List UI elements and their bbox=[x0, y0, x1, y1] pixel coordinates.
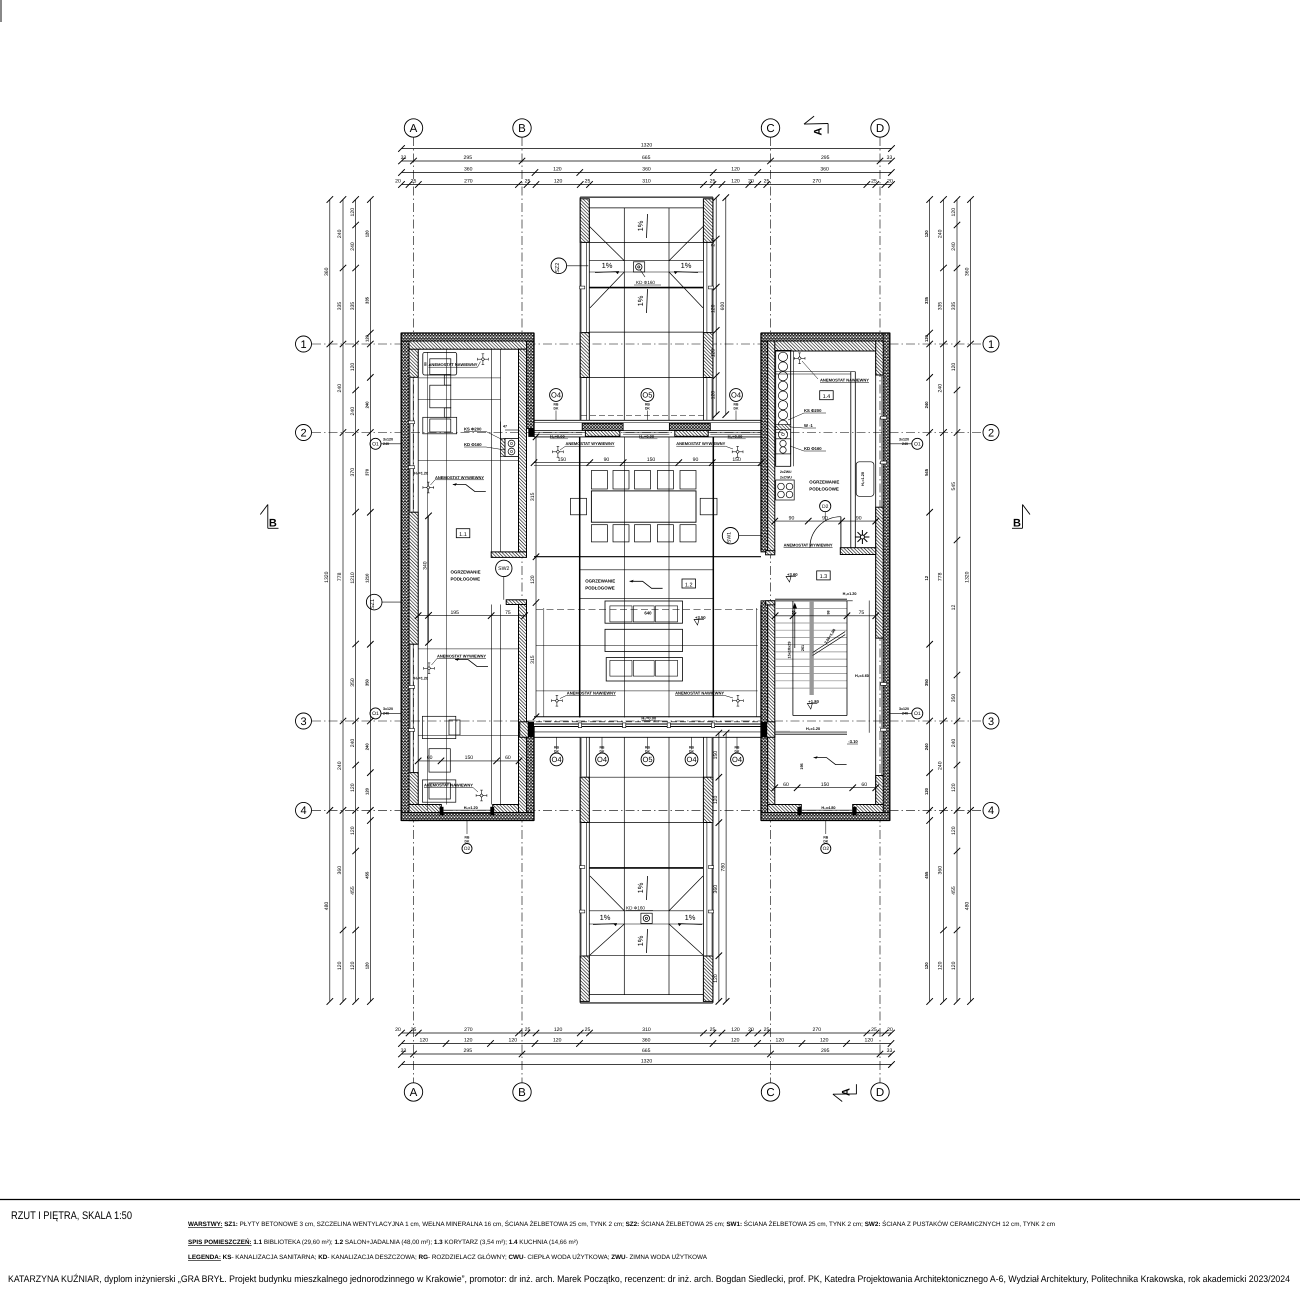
svg-text:A: A bbox=[813, 127, 825, 135]
svg-text:350: 350 bbox=[951, 694, 957, 703]
svg-text:20: 20 bbox=[395, 179, 401, 185]
svg-text:KD Φ160: KD Φ160 bbox=[626, 906, 645, 911]
svg-text:1.3: 1.3 bbox=[820, 574, 828, 580]
svg-text:1%: 1% bbox=[636, 295, 645, 306]
svg-text:120: 120 bbox=[951, 363, 957, 372]
svg-text:H₅=1.20: H₅=1.20 bbox=[414, 676, 428, 680]
svg-text:25: 25 bbox=[525, 1027, 531, 1033]
svg-text:350: 350 bbox=[350, 678, 356, 687]
svg-text:778: 778 bbox=[337, 572, 343, 581]
svg-text:665: 665 bbox=[642, 155, 651, 161]
svg-text:33: 33 bbox=[887, 155, 893, 161]
svg-text:120: 120 bbox=[350, 363, 356, 372]
svg-text:3x120: 3x120 bbox=[383, 438, 393, 442]
svg-text:150: 150 bbox=[558, 457, 567, 463]
svg-text:-3.10: -3.10 bbox=[848, 739, 858, 744]
svg-text:120: 120 bbox=[951, 826, 957, 835]
svg-text:240: 240 bbox=[350, 407, 356, 416]
svg-text:2: 2 bbox=[988, 427, 994, 439]
svg-text:240: 240 bbox=[951, 739, 957, 748]
svg-text:1320: 1320 bbox=[641, 1059, 652, 1065]
svg-text:1.2: 1.2 bbox=[685, 582, 693, 588]
svg-text:ANEMOSTAT NAWIEWNY: ANEMOSTAT NAWIEWNY bbox=[675, 690, 724, 695]
svg-text:2: 2 bbox=[300, 427, 306, 439]
svg-text:240: 240 bbox=[337, 761, 343, 770]
svg-text:O4: O4 bbox=[551, 755, 561, 764]
svg-text:DK: DK bbox=[465, 839, 470, 843]
svg-text:25: 25 bbox=[710, 179, 716, 185]
svg-text:1: 1 bbox=[300, 339, 306, 351]
svg-text:360: 360 bbox=[965, 267, 971, 276]
svg-text:25: 25 bbox=[525, 179, 531, 185]
svg-text:O2: O2 bbox=[464, 846, 471, 852]
svg-text:WARSTWY: SZ1: PŁYTY BETONOWE 3: WARSTWY: SZ1: PŁYTY BETONOWE 3 cm, SZCZE… bbox=[188, 1220, 1055, 1228]
svg-text:240: 240 bbox=[938, 761, 944, 770]
svg-text:120: 120 bbox=[865, 1038, 874, 1044]
svg-text:1%: 1% bbox=[636, 220, 645, 231]
svg-text:370: 370 bbox=[350, 468, 356, 477]
svg-text:310: 310 bbox=[642, 179, 651, 185]
svg-text:120: 120 bbox=[951, 961, 957, 970]
svg-text:120: 120 bbox=[924, 962, 929, 970]
svg-text:315: 315 bbox=[530, 655, 536, 664]
svg-text:O4: O4 bbox=[686, 755, 696, 764]
svg-text:25: 25 bbox=[764, 1027, 770, 1033]
svg-text:O4: O4 bbox=[731, 391, 741, 400]
svg-text:1210: 1210 bbox=[350, 572, 356, 583]
svg-text:455: 455 bbox=[924, 871, 929, 879]
svg-text:240: 240 bbox=[902, 442, 908, 446]
svg-text:90: 90 bbox=[604, 457, 610, 463]
svg-text:25: 25 bbox=[585, 179, 591, 185]
svg-text:A: A bbox=[410, 1087, 418, 1099]
svg-text:47: 47 bbox=[503, 424, 507, 428]
svg-text:120: 120 bbox=[365, 334, 370, 342]
svg-text:270: 270 bbox=[813, 179, 822, 185]
svg-text:B: B bbox=[518, 123, 526, 135]
svg-text:335: 335 bbox=[337, 302, 343, 311]
svg-text:240: 240 bbox=[350, 739, 356, 748]
svg-text:240: 240 bbox=[710, 238, 716, 247]
svg-text:H₅=1.20: H₅=1.20 bbox=[806, 727, 820, 731]
svg-text:O5: O5 bbox=[642, 755, 652, 764]
svg-text:H₁=4.60: H₁=4.60 bbox=[855, 674, 869, 678]
svg-text:455: 455 bbox=[350, 886, 356, 895]
svg-text:360: 360 bbox=[642, 1038, 651, 1044]
svg-text:ANEMOSTAT NAWIEWNY: ANEMOSTAT NAWIEWNY bbox=[820, 378, 869, 383]
svg-text:1%: 1% bbox=[685, 913, 696, 922]
svg-text:DK: DK bbox=[554, 407, 559, 411]
svg-text:1%: 1% bbox=[600, 913, 611, 922]
svg-text:240: 240 bbox=[902, 712, 908, 716]
svg-text:120: 120 bbox=[951, 208, 957, 217]
svg-text:1320: 1320 bbox=[324, 571, 330, 582]
svg-text:O1: O1 bbox=[914, 442, 921, 448]
svg-text:120: 120 bbox=[464, 1038, 473, 1044]
svg-text:90: 90 bbox=[822, 515, 828, 521]
svg-text:335: 335 bbox=[924, 296, 929, 304]
svg-text:ANEMOSTAT NAWIEWNY: ANEMOSTAT NAWIEWNY bbox=[567, 690, 616, 695]
svg-text:1%: 1% bbox=[602, 261, 613, 270]
svg-text:120: 120 bbox=[350, 783, 356, 792]
svg-text:20: 20 bbox=[395, 1027, 401, 1033]
svg-text:360: 360 bbox=[713, 885, 719, 894]
svg-text:120: 120 bbox=[350, 961, 356, 970]
svg-text:120: 120 bbox=[951, 783, 957, 792]
svg-text:120: 120 bbox=[924, 230, 929, 238]
svg-text:360: 360 bbox=[938, 866, 944, 875]
svg-text:240: 240 bbox=[365, 401, 370, 409]
svg-text:O4: O4 bbox=[551, 391, 561, 400]
svg-text:RZUT I PIĘTRA, SKALA 1:50: RZUT I PIĘTRA, SKALA 1:50 bbox=[11, 1210, 132, 1222]
svg-text:1: 1 bbox=[988, 339, 994, 351]
svg-text:B: B bbox=[1013, 518, 1021, 530]
svg-text:B: B bbox=[269, 518, 277, 530]
svg-text:ANEMOSTAT NAWIEWNY: ANEMOSTAT NAWIEWNY bbox=[424, 783, 473, 788]
svg-text:LEGENDA: KS- KANALIZACJA SANIT: LEGENDA: KS- KANALIZACJA SANITARNA; KD- … bbox=[188, 1253, 708, 1261]
svg-text:25: 25 bbox=[411, 1027, 417, 1033]
svg-text:DK: DK bbox=[823, 839, 828, 843]
svg-text:12: 12 bbox=[924, 575, 929, 580]
svg-text:600: 600 bbox=[720, 302, 726, 311]
svg-text:295: 295 bbox=[821, 1048, 830, 1054]
svg-text:DK: DK bbox=[734, 407, 739, 411]
svg-text:335: 335 bbox=[350, 302, 356, 311]
svg-text:O1: O1 bbox=[372, 711, 379, 717]
svg-text:240: 240 bbox=[938, 229, 944, 238]
svg-text:90: 90 bbox=[693, 457, 699, 463]
svg-text:150: 150 bbox=[465, 755, 474, 761]
svg-text:2xCWU: 2xCWU bbox=[780, 476, 792, 480]
svg-text:120: 120 bbox=[710, 391, 716, 400]
svg-text:261: 261 bbox=[801, 645, 805, 651]
svg-text:360: 360 bbox=[820, 167, 829, 173]
svg-text:150: 150 bbox=[821, 782, 830, 788]
svg-text:OGRZEWANIE: OGRZEWANIE bbox=[809, 480, 839, 485]
svg-text:240: 240 bbox=[365, 743, 370, 751]
svg-text:ANEMOSTAT WYWIEWNY: ANEMOSTAT WYWIEWNY bbox=[676, 441, 725, 446]
svg-text:1210: 1210 bbox=[365, 573, 370, 583]
svg-text:3x120: 3x120 bbox=[383, 707, 393, 711]
svg-text:270: 270 bbox=[464, 1027, 473, 1033]
svg-text:150: 150 bbox=[647, 457, 656, 463]
svg-text:60: 60 bbox=[427, 755, 433, 761]
svg-text:O4: O4 bbox=[732, 755, 742, 764]
svg-text:120: 120 bbox=[924, 787, 929, 795]
svg-text:ANEMOSTAT WYWIEWNY: ANEMOSTAT WYWIEWNY bbox=[437, 654, 486, 659]
svg-text:150: 150 bbox=[732, 457, 741, 463]
svg-text:120: 120 bbox=[731, 1027, 740, 1033]
svg-text:O1: O1 bbox=[914, 711, 921, 717]
svg-text:H₁=1.20: H₁=1.20 bbox=[843, 592, 857, 596]
svg-text:SW2: SW2 bbox=[498, 566, 509, 572]
svg-text:335: 335 bbox=[951, 302, 957, 311]
svg-text:33: 33 bbox=[887, 1048, 893, 1054]
svg-text:1.1: 1.1 bbox=[459, 532, 467, 538]
svg-text:A: A bbox=[410, 123, 418, 135]
svg-text:1%: 1% bbox=[681, 261, 692, 270]
svg-text:90: 90 bbox=[856, 515, 862, 521]
svg-text:640: 640 bbox=[644, 610, 652, 615]
svg-text:778: 778 bbox=[938, 572, 944, 581]
svg-text:120: 120 bbox=[553, 1038, 562, 1044]
svg-text:KATARZYNA KUŹNIAR, dyplom inży: KATARZYNA KUŹNIAR, dyplom inżynierski „G… bbox=[8, 1273, 1290, 1285]
svg-text:OGRZEWANIE: OGRZEWANIE bbox=[451, 570, 481, 575]
svg-text:120: 120 bbox=[710, 304, 716, 313]
svg-text:370: 370 bbox=[365, 468, 370, 476]
svg-text:25: 25 bbox=[871, 179, 877, 185]
svg-text:4: 4 bbox=[300, 805, 306, 817]
svg-text:ANEMOSTAT WYWIEWNY: ANEMOSTAT WYWIEWNY bbox=[566, 441, 615, 446]
svg-text:120: 120 bbox=[509, 1038, 518, 1044]
svg-text:3x120: 3x120 bbox=[899, 438, 909, 442]
svg-text:295: 295 bbox=[464, 155, 473, 161]
svg-text:360: 360 bbox=[642, 167, 651, 173]
svg-text:120: 120 bbox=[553, 167, 562, 173]
svg-text:120: 120 bbox=[554, 179, 563, 185]
svg-text:360: 360 bbox=[324, 267, 330, 276]
svg-text:60: 60 bbox=[505, 755, 511, 761]
svg-text:D: D bbox=[876, 1087, 884, 1099]
svg-text:33: 33 bbox=[401, 1048, 407, 1054]
svg-text:120: 120 bbox=[365, 230, 370, 238]
svg-text:340: 340 bbox=[423, 561, 429, 570]
svg-text:120: 120 bbox=[731, 179, 740, 185]
svg-text:120: 120 bbox=[776, 1038, 785, 1044]
svg-text:120: 120 bbox=[924, 334, 929, 342]
svg-text:KD Φ160: KD Φ160 bbox=[804, 446, 822, 451]
svg-text:4: 4 bbox=[988, 805, 994, 817]
svg-text:25: 25 bbox=[585, 1027, 591, 1033]
svg-text:O2: O2 bbox=[823, 846, 830, 852]
svg-text:350: 350 bbox=[365, 678, 370, 686]
svg-text:120: 120 bbox=[365, 787, 370, 795]
svg-text:O5: O5 bbox=[642, 391, 652, 400]
svg-text:665: 665 bbox=[642, 1048, 651, 1054]
svg-text:B: B bbox=[518, 1087, 526, 1099]
svg-text:ANEMOSTAT NAWIEWNY: ANEMOSTAT NAWIEWNY bbox=[429, 362, 478, 367]
svg-text:KD Φ160: KD Φ160 bbox=[636, 280, 655, 285]
svg-text:25: 25 bbox=[871, 1027, 877, 1033]
svg-text:ANEMOSTAT WYWIEWNY: ANEMOSTAT WYWIEWNY bbox=[784, 543, 833, 548]
svg-text:1.4: 1.4 bbox=[823, 394, 831, 400]
svg-text:W -1: W -1 bbox=[804, 423, 814, 428]
svg-text:KS Φ200: KS Φ200 bbox=[804, 408, 822, 413]
svg-text:1%: 1% bbox=[636, 935, 645, 946]
svg-text:3: 3 bbox=[988, 716, 994, 728]
svg-text:OGRZEWANIE: OGRZEWANIE bbox=[585, 579, 615, 584]
svg-text:90: 90 bbox=[789, 515, 795, 521]
svg-text:2xZWU: 2xZWU bbox=[780, 470, 792, 474]
svg-text:75: 75 bbox=[859, 610, 865, 616]
svg-text:455: 455 bbox=[951, 886, 957, 895]
svg-text:120: 120 bbox=[713, 974, 719, 983]
svg-text:H₅=1.20: H₅=1.20 bbox=[414, 471, 428, 475]
svg-text:25: 25 bbox=[710, 1027, 716, 1033]
svg-text:120: 120 bbox=[731, 1038, 740, 1044]
svg-text:240: 240 bbox=[924, 401, 929, 409]
svg-text:120: 120 bbox=[530, 575, 536, 584]
svg-text:33: 33 bbox=[401, 155, 407, 161]
svg-text:240: 240 bbox=[350, 242, 356, 251]
svg-text:98: 98 bbox=[827, 611, 831, 615]
svg-text:H₀=0.00: H₀=0.00 bbox=[728, 434, 744, 439]
svg-text:295: 295 bbox=[821, 155, 830, 161]
svg-text:15x18x29: 15x18x29 bbox=[788, 642, 792, 659]
svg-text:240: 240 bbox=[337, 384, 343, 393]
svg-text:120: 120 bbox=[731, 167, 740, 173]
svg-text:ANEMOSTAT WYWIEWNY: ANEMOSTAT WYWIEWNY bbox=[435, 475, 484, 480]
svg-text:20: 20 bbox=[887, 1027, 893, 1033]
svg-text:545: 545 bbox=[951, 482, 957, 491]
svg-text:H₀=0.00: H₀=0.00 bbox=[641, 715, 657, 720]
svg-text:120: 120 bbox=[554, 1027, 563, 1033]
svg-text:A: A bbox=[841, 1088, 853, 1096]
svg-text:SZ1: SZ1 bbox=[370, 599, 376, 609]
svg-text:3: 3 bbox=[300, 716, 306, 728]
svg-text:PODŁOGOWE: PODŁOGOWE bbox=[451, 577, 481, 582]
svg-text:KS Φ200: KS Φ200 bbox=[464, 427, 482, 432]
svg-text:PODŁOGOWE: PODŁOGOWE bbox=[585, 586, 615, 591]
svg-text:315: 315 bbox=[530, 492, 536, 501]
svg-text:75: 75 bbox=[505, 610, 511, 616]
svg-text:1%: 1% bbox=[636, 882, 645, 893]
svg-text:C: C bbox=[766, 1087, 774, 1099]
svg-text:120: 120 bbox=[713, 795, 719, 804]
svg-text:360: 360 bbox=[337, 866, 343, 875]
svg-text:120: 120 bbox=[350, 208, 356, 217]
svg-text:H₀=0.00: H₀=0.00 bbox=[550, 434, 566, 439]
svg-text:60: 60 bbox=[861, 782, 867, 788]
svg-text:240: 240 bbox=[337, 229, 343, 238]
svg-text:O1: O1 bbox=[372, 442, 379, 448]
svg-text:310: 310 bbox=[642, 1027, 651, 1033]
svg-text:545: 545 bbox=[924, 468, 929, 476]
svg-text:195: 195 bbox=[450, 610, 459, 616]
svg-text:480: 480 bbox=[324, 902, 330, 911]
svg-text:SW1: SW1 bbox=[727, 532, 733, 543]
svg-text:98: 98 bbox=[792, 611, 796, 615]
svg-text:150: 150 bbox=[713, 751, 719, 760]
svg-text:O4: O4 bbox=[597, 755, 607, 764]
svg-text:120: 120 bbox=[710, 349, 716, 358]
svg-text:240: 240 bbox=[924, 743, 929, 751]
svg-text:240: 240 bbox=[383, 442, 389, 446]
svg-text:120: 120 bbox=[337, 961, 343, 970]
svg-text:360: 360 bbox=[464, 167, 473, 173]
svg-text:DK: DK bbox=[645, 407, 650, 411]
svg-text:120: 120 bbox=[938, 961, 944, 970]
svg-text:20: 20 bbox=[748, 179, 754, 185]
svg-text:335: 335 bbox=[938, 302, 944, 311]
svg-text:295: 295 bbox=[464, 1048, 473, 1054]
svg-text:80: 80 bbox=[424, 362, 428, 366]
svg-text:455: 455 bbox=[365, 871, 370, 879]
svg-text:25: 25 bbox=[411, 179, 417, 185]
svg-text:D: D bbox=[876, 123, 884, 135]
svg-text:D2: D2 bbox=[822, 504, 829, 510]
svg-text:12: 12 bbox=[951, 605, 957, 611]
svg-text:SZ2: SZ2 bbox=[555, 263, 561, 273]
svg-text:KD Φ160: KD Φ160 bbox=[464, 442, 482, 447]
svg-text:270: 270 bbox=[813, 1027, 822, 1033]
svg-text:H₀=0.00: H₀=0.00 bbox=[639, 434, 655, 439]
svg-text:270: 270 bbox=[464, 179, 473, 185]
svg-text:H₅=4.80: H₅=4.80 bbox=[821, 806, 835, 810]
svg-text:PODŁOGOWE: PODŁOGOWE bbox=[809, 487, 839, 492]
svg-text:SPIS POMIESZCZEŃ: 1.1 BIBLIOTE: SPIS POMIESZCZEŃ: 1.1 BIBLIOTEKA (29,60 … bbox=[188, 1238, 578, 1246]
svg-text:1320: 1320 bbox=[965, 571, 971, 582]
svg-text:335: 335 bbox=[365, 296, 370, 304]
svg-text:240: 240 bbox=[951, 242, 957, 251]
svg-text:350: 350 bbox=[924, 678, 929, 686]
svg-text:1320: 1320 bbox=[641, 143, 652, 149]
svg-text:25: 25 bbox=[764, 179, 770, 185]
svg-text:480: 480 bbox=[965, 902, 971, 911]
svg-text:120: 120 bbox=[365, 962, 370, 970]
svg-text:780: 780 bbox=[720, 863, 726, 872]
svg-text:240: 240 bbox=[383, 712, 389, 716]
svg-text:C: C bbox=[766, 123, 774, 135]
svg-text:20: 20 bbox=[887, 179, 893, 185]
svg-text:195: 195 bbox=[800, 763, 804, 769]
svg-text:120: 120 bbox=[350, 826, 356, 835]
svg-text:20: 20 bbox=[748, 1027, 754, 1033]
svg-text:3x120: 3x120 bbox=[899, 707, 909, 711]
svg-text:H₁=1.20: H₁=1.20 bbox=[861, 472, 865, 486]
svg-text:60: 60 bbox=[783, 782, 789, 788]
svg-text:120: 120 bbox=[420, 1038, 429, 1044]
svg-text:240: 240 bbox=[938, 384, 944, 393]
svg-text:H₅=1.20: H₅=1.20 bbox=[464, 806, 478, 810]
svg-text:120: 120 bbox=[820, 1038, 829, 1044]
